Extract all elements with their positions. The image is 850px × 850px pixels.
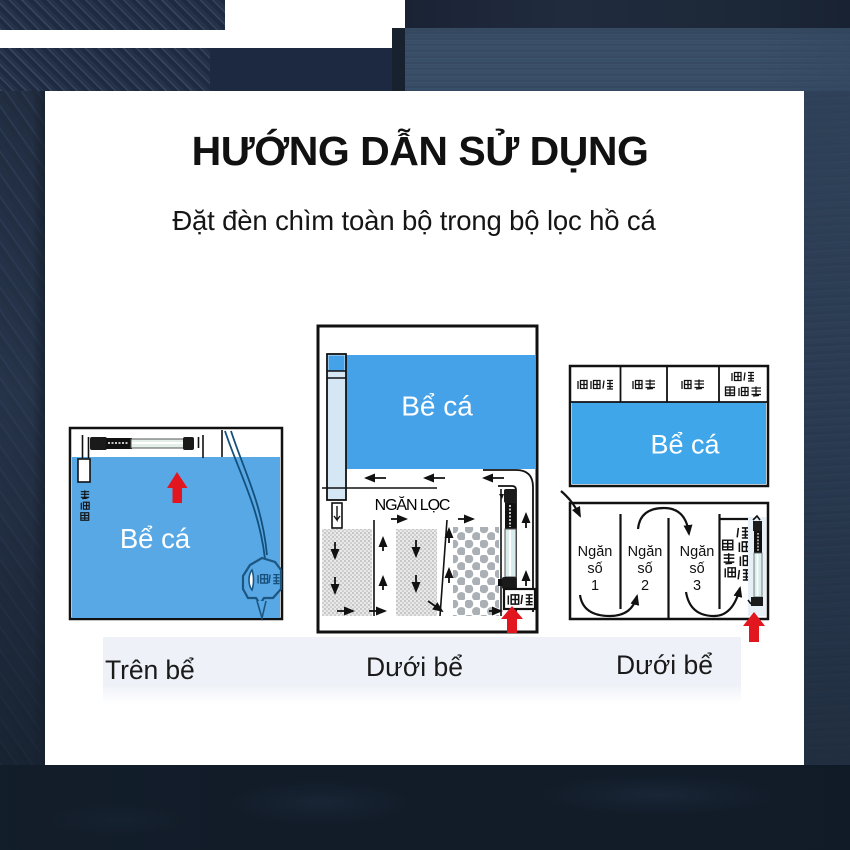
svg-text:Ngăn: Ngăn	[628, 544, 663, 560]
svg-text:NGĂN LỌC: NGĂN LỌC	[375, 495, 450, 514]
svg-text:số: số	[689, 561, 704, 577]
svg-text:3: 3	[693, 578, 701, 594]
svg-text:Ngăn: Ngăn	[680, 544, 715, 560]
svg-text:2: 2	[641, 578, 649, 594]
svg-text:1: 1	[591, 578, 599, 594]
svg-text:Ngăn: Ngăn	[578, 544, 613, 560]
svg-text:Bể cá: Bể cá	[650, 430, 720, 460]
svg-text:Bể cá: Bể cá	[401, 391, 473, 422]
svg-text:số: số	[637, 561, 652, 577]
svg-text:Bể cá: Bể cá	[120, 523, 191, 554]
svg-text:số: số	[587, 561, 602, 577]
